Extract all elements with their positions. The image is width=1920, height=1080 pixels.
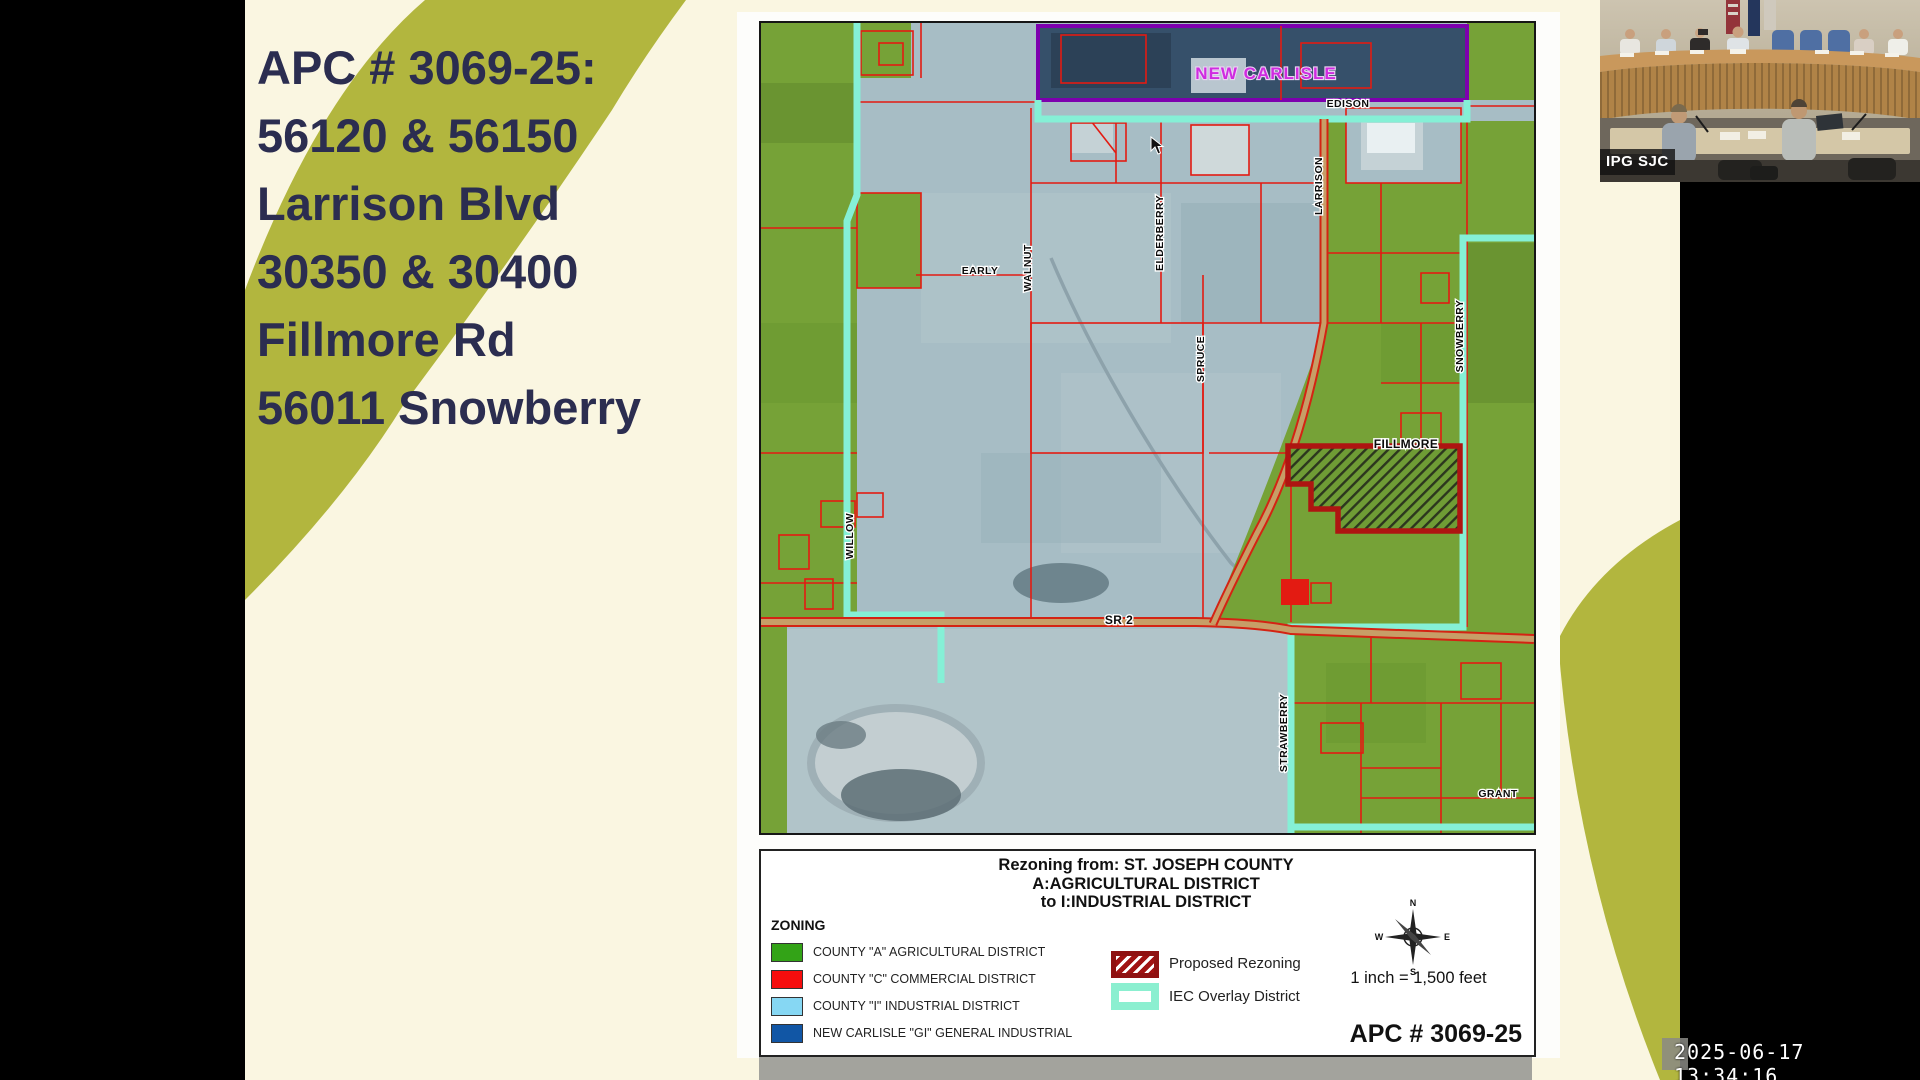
legend-item-label: COUNTY "A" AGRICULTURAL DISTRICT	[813, 945, 1045, 959]
field-patch	[981, 453, 1161, 543]
agricultural-zone-ne	[1467, 23, 1534, 100]
meeting-video-feed: IPG SJC	[1600, 0, 1920, 182]
street-label-sr2: SR 2	[1105, 613, 1133, 627]
swatch-iec-overlay	[1111, 983, 1159, 1010]
swatch-industrial	[771, 997, 803, 1016]
street-label-edison: EDISON	[1327, 98, 1370, 110]
slide-title-line: 56011 Snowberry	[257, 374, 641, 442]
swatch-commercial	[771, 970, 803, 989]
case-number: APC # 3069-25	[1350, 1020, 1522, 1049]
legend-iec-overlay-label: IEC Overlay District	[1169, 988, 1300, 1005]
tree-cluster	[841, 769, 961, 821]
legend-item-label: COUNTY "C" COMMERCIAL DISTRICT	[813, 972, 1036, 986]
legend-item-label: COUNTY "I" INDUSTRIAL DISTRICT	[813, 999, 1020, 1013]
zoning-map: NEW CARLISLE EDISON EARLY WALNUT ELDERBE…	[759, 21, 1536, 835]
slide-title-line: 30350 & 30400	[257, 238, 641, 306]
swatch-general-industrial	[771, 1024, 803, 1043]
street-label-grant: GRANT	[1478, 788, 1518, 800]
street-label-fillmore: FILLMORE	[1374, 437, 1439, 451]
field-patch	[1181, 203, 1321, 323]
slide-title-line: 56120 & 56150	[257, 102, 641, 170]
map-legend: Rezoning from: ST. JOSEPH COUNTYA:AGRICU…	[759, 849, 1536, 1057]
street-label-walnut: WALNUT	[1022, 244, 1034, 291]
timestamp: 2025-06-17 13:34:16	[1674, 1040, 1920, 1080]
compass-e: E	[1444, 932, 1450, 942]
tree-cluster	[816, 721, 866, 749]
slide-title: APC # 3069-25:56120 & 56150Larrison Blvd…	[257, 34, 641, 442]
commercial-parcel	[1281, 579, 1309, 605]
screen: APC # 3069-25:56120 & 56150Larrison Blvd…	[0, 0, 1920, 1080]
street-label-larrison: LARRISON	[1313, 157, 1325, 215]
zoning-map-svg: NEW CARLISLE EDISON EARLY WALNUT ELDERBE…	[761, 23, 1534, 833]
street-label-early: EARLY	[962, 265, 999, 277]
legend-title-line: to I:INDUSTRIAL DISTRICT	[836, 893, 1456, 912]
chair-silhouette	[1848, 158, 1896, 180]
slide-title-line: Larrison Blvd	[257, 170, 641, 238]
video-watermark: IPG SJC	[1600, 149, 1675, 175]
bag	[1750, 166, 1778, 180]
field-green-dark	[1467, 243, 1534, 403]
street-label-snowberry: SNOWBERRY	[1454, 300, 1466, 373]
map-scale-text: 1 inch = 1,500 feet	[1306, 969, 1531, 988]
compass-w: W	[1375, 932, 1384, 942]
legend-title-line: A:AGRICULTURAL DISTRICT	[836, 875, 1456, 894]
laptop	[1816, 113, 1843, 131]
slide-title-line: Fillmore Rd	[257, 306, 641, 374]
swatch-agricultural	[771, 943, 803, 962]
field-green-dark	[761, 83, 857, 143]
document-bottom-shadow	[759, 1056, 1532, 1080]
building	[1071, 123, 1113, 153]
street-label-elderberry: ELDERBERRY	[1154, 195, 1166, 271]
legend-proposed-rezoning-label: Proposed Rezoning	[1169, 955, 1301, 972]
field-patch	[921, 193, 1171, 343]
building	[1191, 125, 1249, 175]
swatch-proposed-rezoning	[1111, 951, 1159, 978]
legend-zoning-header: ZONING	[771, 917, 825, 933]
nc-dark-patch	[1051, 33, 1171, 88]
legend-item-label: NEW CARLISLE "GI" GENERAL INDUSTRIAL	[813, 1026, 1072, 1040]
pond	[1013, 563, 1109, 603]
slide-title-line: APC # 3069-25:	[257, 34, 641, 102]
compass-rose: N E S W	[1373, 897, 1453, 977]
legend-title-line: Rezoning from: ST. JOSEPH COUNTY	[836, 856, 1456, 875]
building-roof	[1367, 123, 1415, 153]
street-label-spruce: SPRUCE	[1195, 336, 1207, 382]
street-label-strawberry: STRAWBERRY	[1278, 694, 1290, 772]
compass-n: N	[1410, 898, 1417, 908]
olive-swoosh-bottom-right	[1558, 520, 1680, 1080]
field-green-dark	[761, 323, 857, 403]
district-label-new-carlisle: NEW CARLISLE	[1195, 64, 1336, 83]
legend-title: Rezoning from: ST. JOSEPH COUNTYA:AGRICU…	[836, 856, 1456, 912]
mouse-cursor	[1150, 136, 1166, 156]
street-label-willow: WILLOW	[844, 513, 856, 559]
